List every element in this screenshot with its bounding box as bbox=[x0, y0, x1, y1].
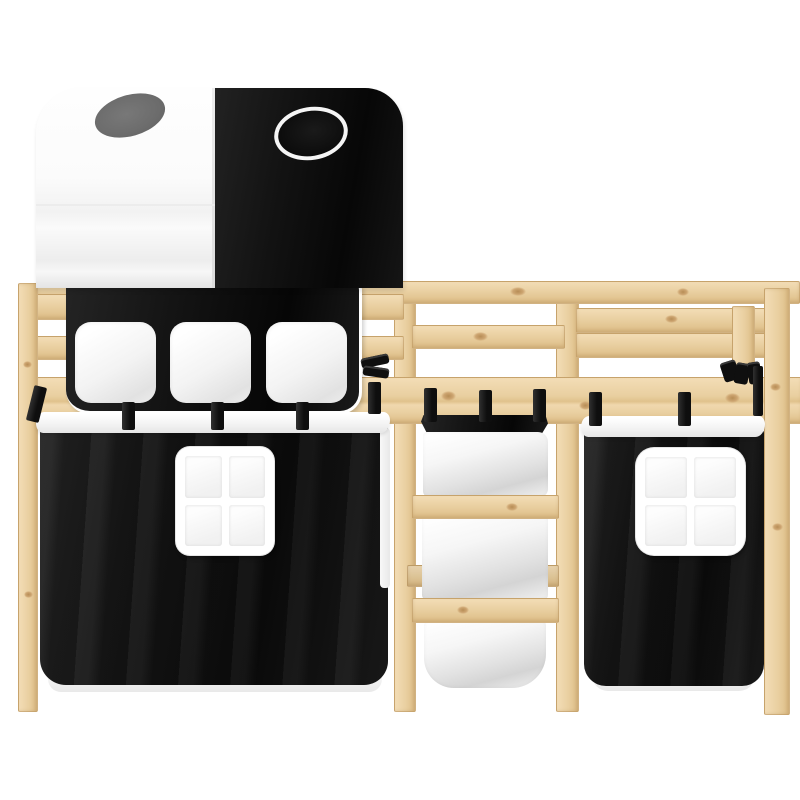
wood-knot bbox=[23, 361, 32, 368]
play-tunnel bbox=[36, 88, 403, 288]
wood-knot bbox=[677, 288, 689, 296]
right-curtain-window bbox=[636, 448, 745, 555]
wood-knot bbox=[24, 591, 33, 598]
organizer-pocket-2 bbox=[170, 322, 251, 403]
window-pane bbox=[694, 505, 736, 546]
organizer-pocket-3 bbox=[266, 322, 347, 403]
curtain-strap bbox=[678, 392, 691, 426]
left-post bbox=[18, 283, 38, 712]
strap-fold bbox=[362, 365, 389, 379]
strap-bundle-left-tail bbox=[368, 382, 381, 414]
curtain-strap bbox=[122, 402, 135, 430]
wood-knot bbox=[725, 393, 740, 403]
window-pane bbox=[185, 505, 222, 547]
wood-knot bbox=[510, 287, 526, 296]
ladder-bag-panel-2 bbox=[422, 514, 548, 600]
wood-knot bbox=[457, 606, 469, 614]
wood-knot bbox=[441, 391, 456, 401]
wood-knot bbox=[473, 332, 488, 341]
ladder-bag-panel-1 bbox=[423, 432, 548, 497]
bag-strap bbox=[424, 388, 437, 422]
wood-knot bbox=[772, 523, 783, 531]
window-pane bbox=[694, 457, 736, 498]
curtain-strap bbox=[296, 402, 309, 430]
bag-strap bbox=[533, 389, 546, 422]
right-curtain-trim bbox=[581, 416, 765, 437]
product-photo-loft-bed bbox=[0, 0, 800, 800]
curtain-strap bbox=[589, 392, 602, 426]
wood-knot bbox=[770, 383, 781, 391]
left-curtain-window bbox=[176, 447, 274, 555]
curtain-strap bbox=[211, 402, 224, 430]
strap-bundle-left bbox=[361, 354, 391, 384]
window-pane bbox=[229, 456, 266, 498]
ladder-bag-panel-3 bbox=[424, 618, 546, 688]
wood-knot bbox=[506, 503, 518, 511]
strap-bundle-right-tail bbox=[753, 366, 763, 416]
bag-strap bbox=[479, 390, 492, 422]
window-pane bbox=[185, 456, 222, 498]
left-curtain-edge-lining bbox=[380, 428, 390, 588]
ladder-rung-lower bbox=[412, 598, 559, 623]
tunnel-seam-horizontal bbox=[36, 204, 218, 206]
ladder-rung-middle bbox=[412, 495, 559, 519]
window-pane bbox=[229, 505, 266, 547]
wood-knot bbox=[665, 315, 678, 323]
mid-guardrail-plank bbox=[412, 325, 565, 349]
window-pane bbox=[645, 505, 687, 546]
right-post bbox=[764, 288, 790, 715]
organizer-pocket-1 bbox=[75, 322, 156, 403]
window-pane bbox=[645, 457, 687, 498]
